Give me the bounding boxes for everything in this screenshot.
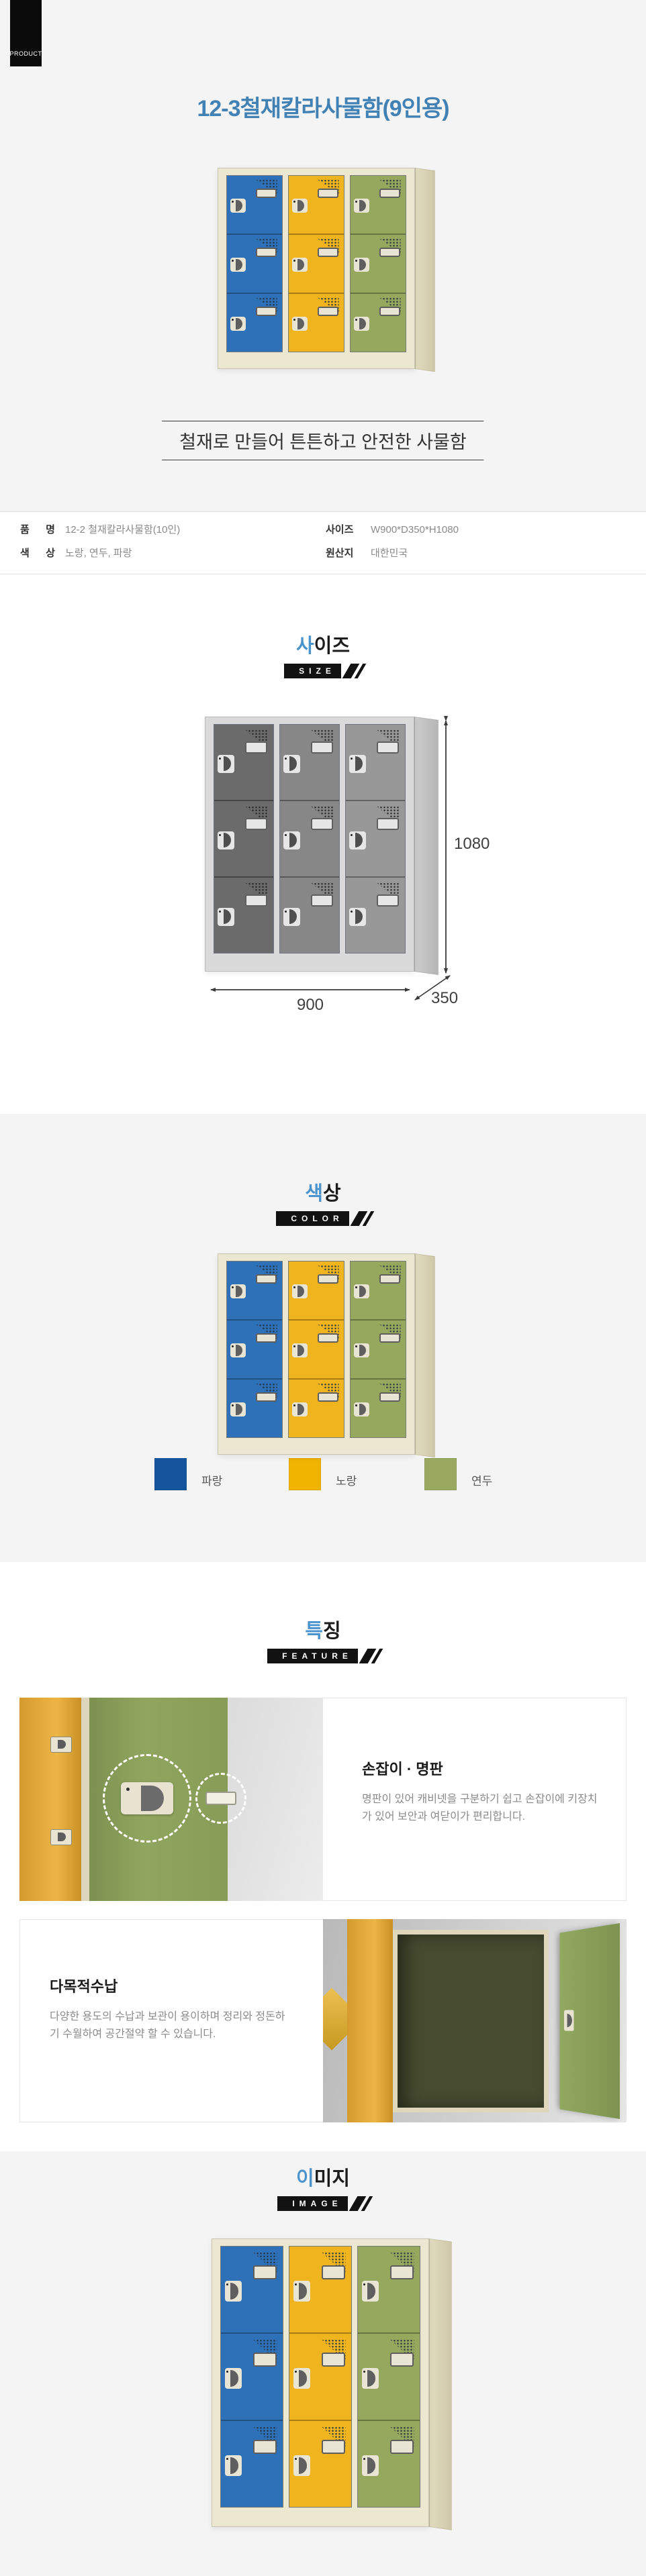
spec-label-size: 사이즈	[326, 523, 361, 537]
swatch-blue-label: 파랑	[201, 1472, 222, 1490]
dimension-depth-label: 350	[431, 989, 458, 1008]
size-section-header: 사이즈 SIZE	[0, 636, 646, 678]
tagline: 철재로 만들어 튼튼하고 안전한 사물함	[162, 421, 483, 460]
spec-value-size: W900*D350*H1080	[371, 523, 459, 537]
spec-value-color: 노랑, 연두, 파랑	[65, 547, 132, 560]
feature-title: 손잡이 · 명판	[362, 1757, 599, 1779]
swatch-green-chip	[424, 1458, 457, 1490]
image-section-badge: IMAGE	[277, 2196, 368, 2211]
dimension-height-label: 1080	[454, 835, 490, 854]
color-section-header: 색상 COLOR	[0, 1184, 646, 1226]
image-section-locker	[212, 2238, 452, 2527]
dimension-width-label: 900	[270, 996, 351, 1015]
image-section-header: 이미지 IMAGE	[0, 2169, 646, 2211]
size-section-title: 사이즈	[0, 636, 646, 658]
feature-section-badge: FEATURE	[267, 1649, 379, 1663]
product-photo-locker	[218, 168, 435, 369]
spec-label-origin: 원산지	[326, 547, 361, 560]
feature-image-handle-nameplate	[19, 1698, 323, 1901]
swatch-yellow-chip	[289, 1458, 321, 1490]
swatch-green: 연두	[424, 1458, 492, 1490]
size-diagram-locker	[205, 717, 439, 972]
feature-text-handle-nameplate: 손잡이 · 명판 명판이 있어 캐비넷을 구분하기 쉽고 손잡이에 키장치가 있…	[323, 1698, 627, 1901]
color-section: 색상 COLOR 파랑 노랑 연두	[0, 1114, 646, 1562]
spec-row-2: 색 상 노랑, 연두, 파랑 원산지 대한민국	[0, 547, 646, 560]
feature-desc: 명판이 있어 캐비넷을 구분하기 쉽고 손잡이에 키장치가 있어 보안과 여닫이…	[362, 1791, 598, 1826]
color-section-locker	[218, 1253, 435, 1455]
spec-value-name: 12-2 철재칼라사물함(10인)	[65, 523, 180, 537]
image-section: 이미지 IMAGE	[0, 2151, 646, 2576]
spec-row-1: 품 명 12-2 철재칼라사물함(10인) 사이즈 W900*D350*H108…	[0, 523, 646, 537]
spec-value-origin: 대한민국	[371, 547, 408, 560]
color-section-badge: COLOR	[276, 1211, 369, 1226]
color-section-title: 색상	[0, 1184, 646, 1205]
spec-label-name: 품 명	[20, 523, 55, 537]
feature-section: 특징 FEATURE 손잡이 · 명판 명판이 있어 캐비넷을 구분하기 쉽고 …	[0, 1562, 646, 2151]
feature-desc: 다양한 용도의 수납과 보관이 용이하며 정리와 정돈하기 수월하여 공간절약 …	[50, 2008, 286, 2043]
tagline-text: 철재로 만들어 튼튼하고 안전한 사물함	[179, 427, 466, 454]
size-section-badge: SIZE	[284, 664, 362, 678]
feature-section-header: 특징 FEATURE	[0, 1621, 646, 1663]
size-section: 사이즈 SIZE 1080 900 350	[0, 574, 646, 1114]
handle-zoom-circle	[103, 1754, 191, 1843]
swatch-blue: 파랑	[154, 1458, 222, 1490]
feature-section-title: 특징	[0, 1621, 646, 1643]
nameplate-zoom-circle	[195, 1773, 246, 1824]
feature-title: 다목적수납	[50, 1975, 303, 1996]
hero-section: PRODUCT 12-3철재칼라사물함(9인용) 철재로 만들어 튼튼하고 안전…	[0, 0, 646, 511]
feature-text-storage: 다목적수납 다양한 용도의 수납과 보관이 용이하며 정리와 정돈하기 수월하여…	[19, 1919, 323, 2122]
spec-label-color: 색 상	[20, 547, 55, 560]
feature-image-storage	[323, 1919, 627, 2122]
swatch-green-label: 연두	[471, 1472, 492, 1490]
swatch-yellow-label: 노랑	[336, 1472, 357, 1490]
product-badge: PRODUCT	[10, 0, 42, 66]
page-title: 12-3철재칼라사물함(9인용)	[0, 90, 646, 123]
image-section-title: 이미지	[0, 2169, 646, 2190]
swatch-blue-chip	[154, 1458, 187, 1490]
product-detail-page: PRODUCT 12-3철재칼라사물함(9인용) 철재로 만들어 튼튼하고 안전…	[0, 0, 646, 2576]
swatch-yellow: 노랑	[289, 1458, 357, 1490]
spec-table: 품 명 12-2 철재칼라사물함(10인) 사이즈 W900*D350*H108…	[0, 511, 646, 574]
